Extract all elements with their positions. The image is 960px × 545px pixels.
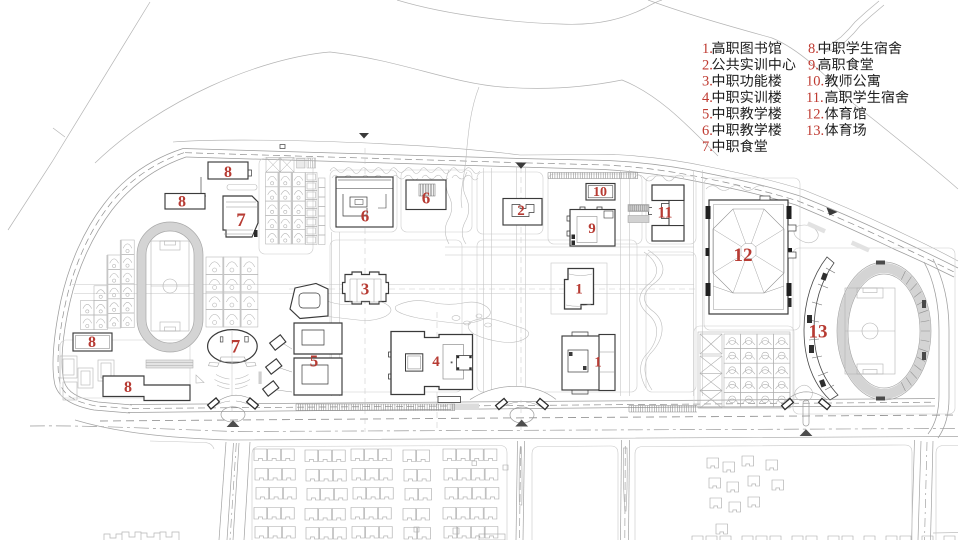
- svg-text:5.: 5.: [702, 106, 713, 122]
- svg-text:3: 3: [361, 280, 370, 299]
- svg-text:12: 12: [734, 245, 753, 266]
- svg-text:1: 1: [575, 282, 583, 298]
- svg-text:9: 9: [588, 221, 596, 237]
- svg-text:3.: 3.: [702, 74, 713, 90]
- svg-text:1.: 1.: [702, 41, 713, 57]
- svg-text:7: 7: [236, 210, 246, 231]
- svg-text:11: 11: [657, 205, 672, 222]
- svg-text:9.: 9.: [808, 57, 819, 73]
- svg-text:5: 5: [310, 352, 319, 371]
- svg-text:4: 4: [432, 354, 440, 370]
- svg-text:1: 1: [594, 355, 602, 371]
- svg-text:8: 8: [88, 334, 96, 351]
- svg-text:12.: 12.: [806, 106, 824, 122]
- svg-text:6.: 6.: [702, 123, 713, 139]
- svg-text:8: 8: [124, 379, 132, 396]
- svg-text:2: 2: [517, 203, 525, 219]
- svg-text:6: 6: [422, 189, 431, 208]
- svg-text:8: 8: [178, 194, 186, 211]
- svg-text:13: 13: [809, 322, 828, 343]
- svg-text:7.: 7.: [702, 139, 713, 155]
- svg-text:10: 10: [593, 185, 607, 200]
- svg-text:8.: 8.: [808, 41, 819, 57]
- svg-text:2.: 2.: [702, 57, 713, 73]
- svg-text:11.: 11.: [806, 90, 824, 106]
- svg-text:6: 6: [361, 207, 370, 226]
- svg-text:7: 7: [231, 337, 241, 358]
- svg-text:13.: 13.: [806, 123, 824, 139]
- svg-text:8: 8: [224, 164, 232, 181]
- svg-text:10.: 10.: [806, 74, 824, 90]
- svg-text:4.: 4.: [702, 90, 713, 106]
